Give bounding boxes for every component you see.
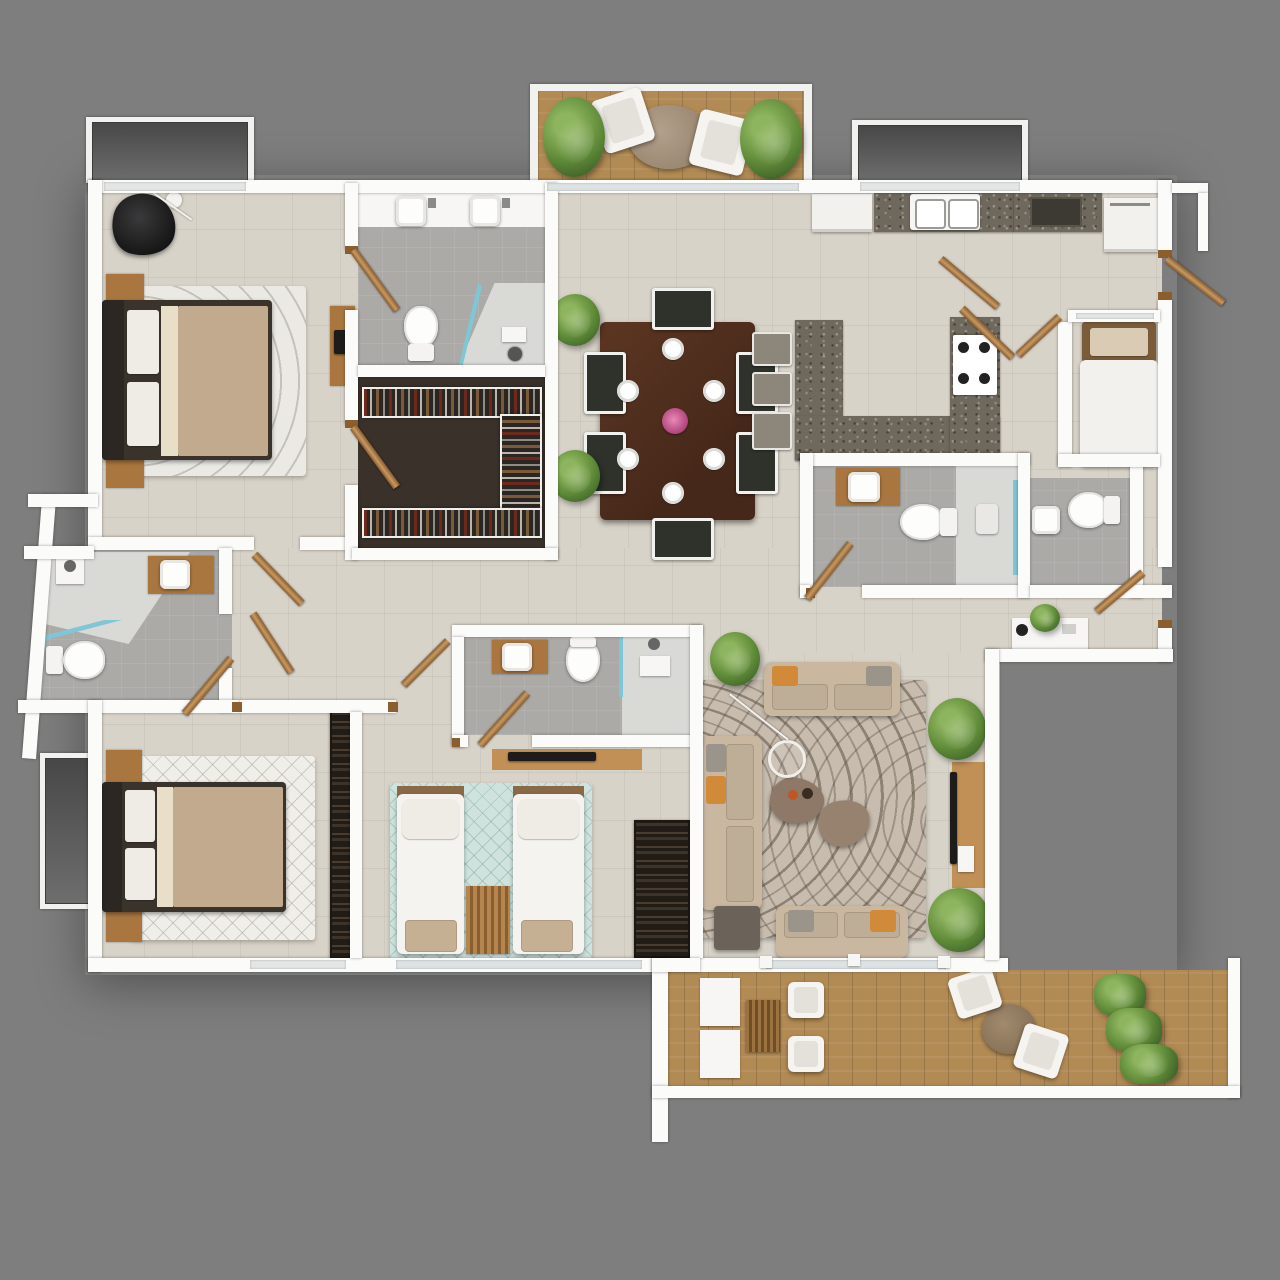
toilet-tank <box>570 637 596 647</box>
toilet <box>404 306 438 348</box>
bed-pillow <box>1090 328 1148 356</box>
threshold <box>1158 292 1172 300</box>
window-bay-top-left <box>92 122 248 182</box>
wall-kidsbath-south <box>532 735 702 747</box>
wall-bed2-kids-divider <box>350 712 362 958</box>
seat-cushion <box>726 744 754 820</box>
toilet <box>1068 492 1108 528</box>
counter-inset <box>1030 197 1082 227</box>
wall-hallbath-west <box>800 453 813 598</box>
door-post <box>848 954 860 966</box>
bar-stool <box>752 332 792 366</box>
tv <box>508 752 596 761</box>
window-sill <box>104 182 246 191</box>
terrace-stool <box>788 1036 824 1072</box>
faucet <box>428 198 436 208</box>
sink <box>1032 506 1060 534</box>
wall-living-east <box>985 649 999 960</box>
wall-master-east <box>545 183 558 560</box>
bed-pillow <box>125 848 155 900</box>
terrace-storage-bench <box>700 1030 740 1078</box>
throw-pillow <box>772 666 798 686</box>
shower-head <box>648 638 660 650</box>
toilet <box>900 504 944 540</box>
potted-plant <box>710 632 760 686</box>
second-bed-duvet <box>173 787 283 907</box>
door-post <box>938 956 950 968</box>
throw-pillow <box>870 910 896 932</box>
fridge <box>812 194 872 232</box>
bed-pillow <box>402 799 459 839</box>
throw-pillow <box>788 910 814 932</box>
window-sill <box>250 960 346 969</box>
shower-head <box>64 560 76 572</box>
bar-stool <box>752 372 792 406</box>
dining-chair <box>652 518 714 560</box>
console-decor <box>1016 624 1028 636</box>
place-setting <box>703 448 725 470</box>
bed-pillow <box>127 310 159 374</box>
place-setting <box>617 380 639 402</box>
shower-tray <box>640 656 670 676</box>
terrace-rail-south <box>652 1086 1240 1098</box>
wall-west-lower <box>88 700 102 972</box>
wall-maidroom-west <box>1058 322 1072 467</box>
place-setting <box>662 482 684 504</box>
terrace-wall-west-cap <box>652 958 700 972</box>
nightstand <box>106 750 142 784</box>
place-setting <box>617 448 639 470</box>
dishwasher <box>1104 198 1158 252</box>
wall-hallbath-south <box>862 585 1030 598</box>
flower-centerpiece <box>662 408 688 434</box>
gas-cooktop <box>953 335 997 395</box>
wardrobe-kids-bedroom <box>634 820 690 958</box>
sink-basin <box>915 199 946 229</box>
folded-blanket <box>161 306 178 456</box>
wall-masterbath-west <box>345 183 358 250</box>
throw-pillow <box>866 666 892 686</box>
sink-basin <box>948 199 979 229</box>
tv <box>950 772 957 864</box>
slat-mat <box>466 886 510 954</box>
wall-guestbath-north <box>24 546 94 559</box>
wall-south-guestbath <box>18 700 240 713</box>
sofa-two-seat <box>776 906 908 958</box>
master-bath-vanity-counter <box>358 192 545 228</box>
wall-stub <box>28 494 98 507</box>
entry-landing-wall <box>1172 183 1208 193</box>
wall-masterbath-west <box>345 310 358 425</box>
vanity-sink <box>848 472 880 502</box>
sofa-three-seat <box>764 662 900 716</box>
vanity-sink <box>470 196 500 226</box>
door-post <box>760 956 772 968</box>
threshold <box>232 702 242 712</box>
vanity-sink <box>502 643 532 671</box>
side-table <box>714 906 760 950</box>
folded-blanket <box>157 787 173 907</box>
place-setting <box>703 380 725 402</box>
toilet-tank <box>1104 496 1120 524</box>
master-bed-headboard <box>102 300 124 460</box>
toilet-tank <box>408 344 434 361</box>
balcony-plant <box>740 99 802 179</box>
closet-rail-bottom <box>362 508 542 538</box>
threshold <box>388 702 398 712</box>
bench-cushion <box>405 920 457 952</box>
console-decor <box>958 846 974 872</box>
bed-pillow <box>518 799 579 839</box>
threshold <box>1158 620 1172 628</box>
potted-plant <box>928 888 990 952</box>
bed-pillow <box>125 790 155 842</box>
balcony-plant <box>543 97 605 177</box>
table-decor <box>802 788 813 799</box>
place-setting <box>662 338 684 360</box>
wall-closet-south <box>352 548 558 560</box>
terrace-hedge <box>1120 1044 1178 1084</box>
wall-maidroom-south <box>1058 454 1160 467</box>
balcony-sliding-door <box>547 183 799 191</box>
terrace-wall-west <box>652 958 668 1142</box>
entry-landing-wall <box>1198 193 1208 251</box>
console-plant <box>1030 604 1060 632</box>
throw-pillow <box>706 776 726 804</box>
rattan-table <box>746 1000 780 1052</box>
potted-plant <box>928 698 986 760</box>
wall-kidsbath-north <box>452 625 702 637</box>
bed-pillow <box>127 382 159 446</box>
wall-west-upper <box>88 180 102 540</box>
kids-window <box>396 960 642 969</box>
seat-cushion <box>772 684 828 710</box>
maid-bed-duvet <box>1080 360 1158 466</box>
vanity-sink <box>396 196 426 226</box>
terrace-storage-bench <box>700 978 740 1026</box>
shower-edge-accent <box>619 637 623 697</box>
bar-stool <box>752 412 792 450</box>
wall-maidbath-south <box>1030 585 1172 598</box>
wall-kidsbath-west <box>452 637 464 747</box>
floor-plan-canvas <box>0 0 1280 1280</box>
terrace-stool <box>788 982 824 1018</box>
shower-head <box>508 347 522 361</box>
wall-se-horizontal <box>985 649 1173 662</box>
dining-chair <box>652 288 714 330</box>
wall-bedroom2-north <box>240 700 396 713</box>
vanity-sink <box>160 560 190 589</box>
bench-cushion <box>521 920 573 952</box>
pendant-lamp <box>768 740 806 778</box>
master-bed-duvet <box>178 306 268 456</box>
maidroom-window <box>1076 313 1154 319</box>
appliance-controls <box>1110 203 1150 206</box>
toilet-tank <box>46 646 63 674</box>
toilet <box>63 641 105 679</box>
kids-bath-shower-floor <box>622 637 690 735</box>
faucet <box>502 198 510 208</box>
table-decor <box>788 790 798 800</box>
closet-rail-right <box>500 414 542 512</box>
shower-control-panel <box>502 327 526 342</box>
nightstand <box>106 908 142 942</box>
threshold <box>452 738 460 747</box>
wall-bath-divider <box>1018 453 1030 598</box>
window-sill <box>860 182 1020 191</box>
wall-hallbath-north <box>800 453 1030 466</box>
sofa-loveseat <box>700 736 762 910</box>
window-bay-top-right <box>858 125 1022 182</box>
console-decor <box>1062 624 1076 634</box>
second-bed-headboard <box>102 782 122 912</box>
wall-living-west <box>690 625 703 958</box>
wall-east <box>1158 300 1172 567</box>
wall-bath-closet-divider <box>358 365 545 377</box>
seat-cushion <box>834 684 892 710</box>
throw-pillow <box>706 744 726 772</box>
shower-head <box>976 504 998 534</box>
wall-guestbath-east <box>219 548 232 614</box>
toilet-tank <box>940 508 957 536</box>
wall-east <box>1158 180 1172 250</box>
seat-cushion <box>726 826 754 902</box>
terrace-rail-east <box>1228 958 1240 1098</box>
